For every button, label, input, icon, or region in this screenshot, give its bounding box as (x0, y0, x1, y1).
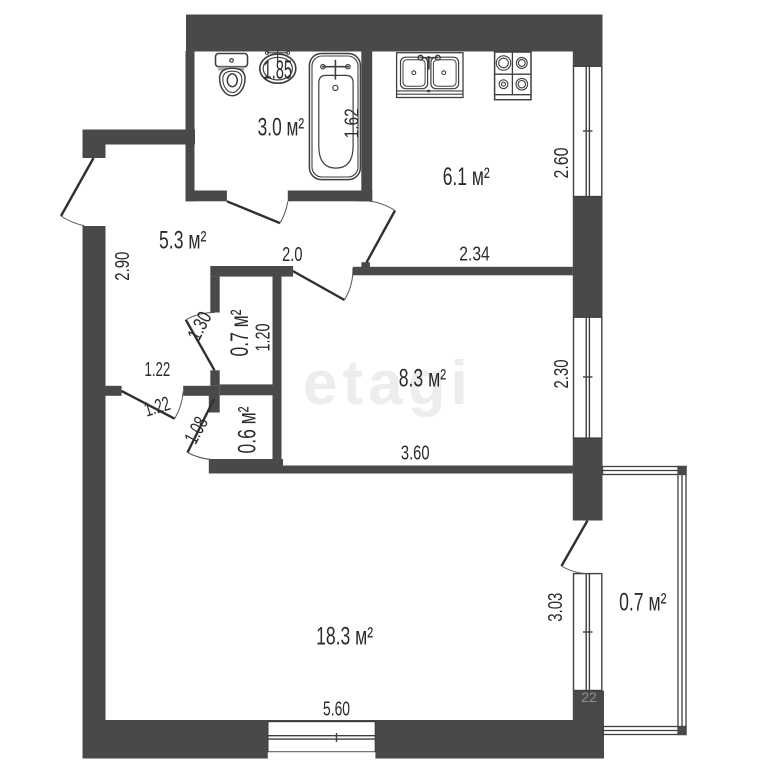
svg-text:5.3 м²: 5.3 м² (159, 226, 206, 254)
svg-text:8.3 м²: 8.3 м² (399, 364, 446, 392)
svg-text:2.34: 2.34 (459, 244, 490, 266)
svg-text:1.62: 1.62 (341, 108, 363, 138)
svg-text:3.03: 3.03 (545, 593, 567, 622)
svg-text:3.60: 3.60 (401, 443, 430, 465)
svg-text:2.30: 2.30 (551, 360, 573, 389)
svg-text:0.7 м²: 0.7 м² (226, 310, 254, 357)
svg-text:22: 22 (581, 689, 597, 705)
svg-text:18.3 м²: 18.3 м² (316, 623, 373, 651)
svg-text:1.22: 1.22 (145, 359, 171, 381)
svg-text:5.60: 5.60 (323, 699, 350, 721)
svg-text:1.85: 1.85 (264, 54, 293, 84)
svg-text:6.1 м²: 6.1 м² (443, 163, 490, 191)
svg-text:etagi: etagi (303, 349, 473, 418)
svg-text:1.20: 1.20 (253, 324, 275, 352)
svg-text:2.0: 2.0 (282, 244, 302, 266)
svg-text:0.6 м²: 0.6 м² (234, 407, 262, 454)
svg-text:2.90: 2.90 (112, 252, 134, 281)
svg-text:2.60: 2.60 (551, 148, 573, 179)
svg-text:0.7 м²: 0.7 м² (619, 589, 666, 617)
svg-text:3.0 м²: 3.0 м² (258, 114, 305, 142)
